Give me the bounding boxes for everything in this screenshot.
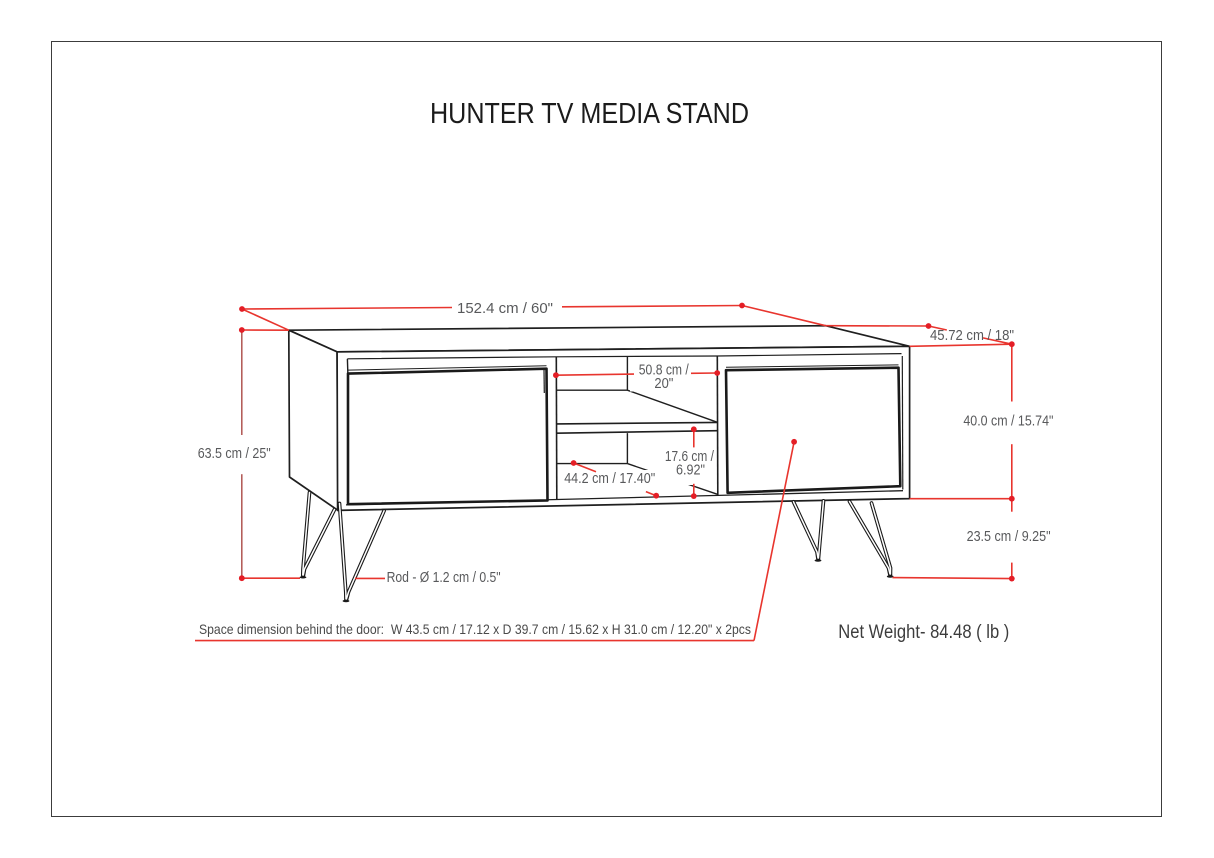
svg-text:40.0 cm / 15.74": 40.0 cm / 15.74" xyxy=(963,414,1053,430)
svg-text:152.4 cm / 60": 152.4 cm / 60" xyxy=(457,301,553,317)
svg-text:45.72 cm / 18": 45.72 cm / 18" xyxy=(930,328,1014,344)
svg-text:HUNTER TV MEDIA STAND: HUNTER TV MEDIA STAND xyxy=(430,98,749,130)
svg-text:63.5 cm / 25": 63.5 cm / 25" xyxy=(198,446,271,462)
svg-text:Space dimension behind the doo: Space dimension behind the door: W 43.5 … xyxy=(199,621,751,637)
svg-text:Net Weight- 84.48 ( lb ): Net Weight- 84.48 ( lb ) xyxy=(838,621,1009,643)
svg-text:6.92": 6.92" xyxy=(676,462,705,478)
svg-text:23.5 cm / 9.25": 23.5 cm / 9.25" xyxy=(967,529,1051,545)
svg-text:Rod - Ø 1.2 cm / 0.5": Rod - Ø 1.2 cm / 0.5" xyxy=(387,570,501,586)
svg-text:44.2 cm / 17.40": 44.2 cm / 17.40" xyxy=(564,471,655,487)
svg-text:20": 20" xyxy=(654,376,673,392)
